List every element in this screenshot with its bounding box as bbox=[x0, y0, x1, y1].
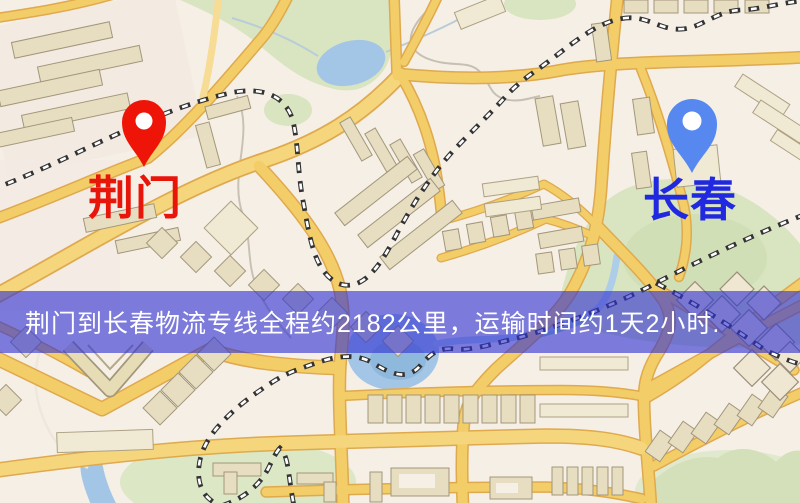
map-image bbox=[0, 0, 800, 503]
route-info-text: 荆门到长春物流专线全程约2182公里，运输时间约1天2小时. bbox=[25, 304, 720, 340]
origin-city-label: 荆门 bbox=[88, 176, 182, 222]
map-screenshot: 荆门 长春 荆门到长春物流专线全程约2182公里，运输时间约1天2小时. bbox=[0, 0, 800, 503]
destination-city-label: 长春 bbox=[643, 178, 737, 224]
route-info-banner: 荆门到长春物流专线全程约2182公里，运输时间约1天2小时. bbox=[0, 291, 800, 353]
